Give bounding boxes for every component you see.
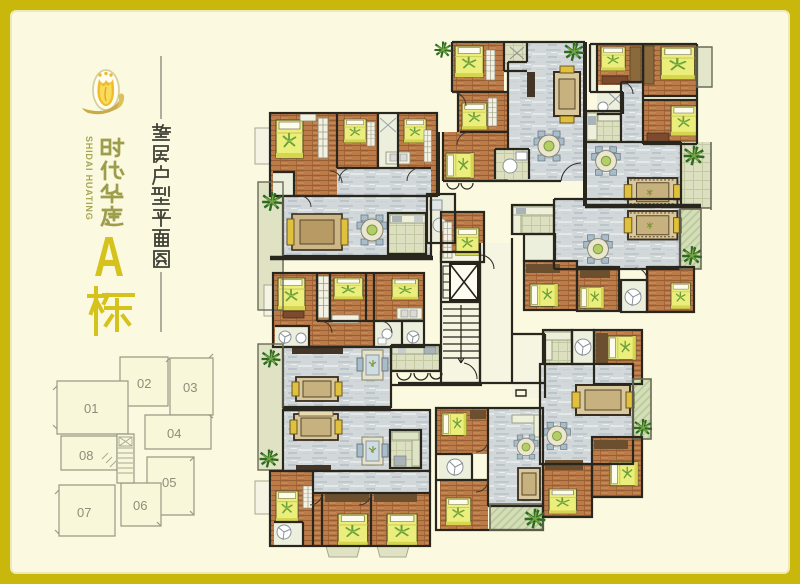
- svg-text:07: 07: [77, 505, 91, 520]
- svg-text:A: A: [94, 225, 124, 289]
- svg-text:02: 02: [137, 376, 151, 391]
- svg-text:01: 01: [84, 401, 98, 416]
- svg-text:05: 05: [162, 475, 176, 490]
- svg-text:03: 03: [183, 380, 197, 395]
- svg-text:04: 04: [167, 426, 181, 441]
- svg-text:06: 06: [133, 498, 147, 513]
- svg-text:08: 08: [79, 448, 93, 463]
- svg-text:SHIDAI HUATING: SHIDAI HUATING: [84, 136, 94, 221]
